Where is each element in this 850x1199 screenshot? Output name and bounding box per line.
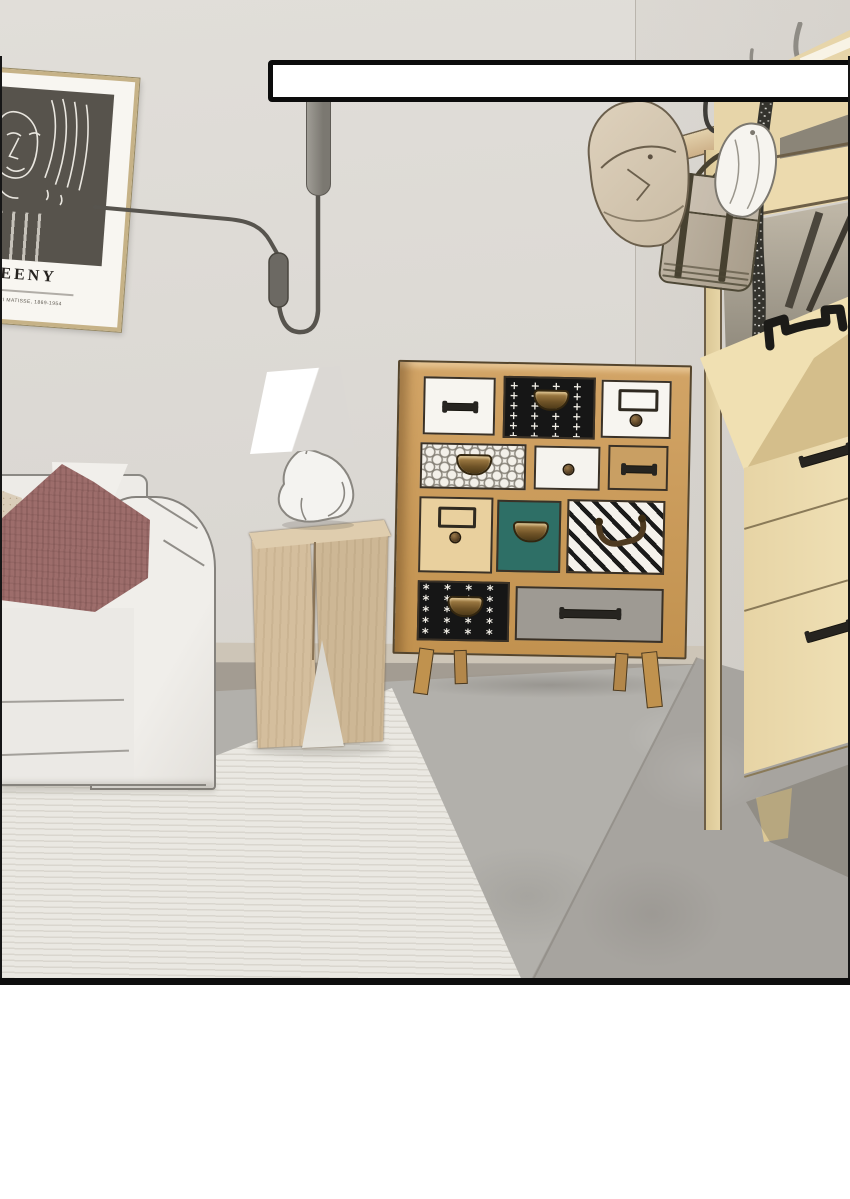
lamp-switch-cylinder	[269, 253, 288, 307]
chest-leg	[413, 648, 434, 696]
sofa-seat	[0, 608, 134, 786]
sofa-floor-shadow	[0, 782, 215, 792]
label-holder	[438, 507, 476, 529]
drawer-handle-cup	[458, 456, 490, 474]
bucket-hat	[583, 95, 698, 253]
wall-lamp-cable	[50, 185, 350, 345]
speech-bubble	[268, 60, 850, 102]
hat-seams	[583, 95, 698, 253]
drawer-plus-pattern: + + + + + + + + + + + + + + + + + + + + …	[503, 376, 596, 440]
table-plank-seam	[312, 542, 316, 660]
panel-border-left	[0, 56, 2, 985]
drawer-knob	[564, 465, 573, 474]
drawer-handle-bar	[622, 466, 656, 473]
drawer-lightwood-label	[418, 496, 493, 573]
label-holder	[618, 389, 658, 412]
cabinet-flap-handle	[748, 300, 848, 360]
panel-border-bottom	[0, 978, 850, 985]
drawer-white-plain	[534, 445, 601, 490]
drawer-gray	[515, 586, 664, 643]
drawer-handle-cup	[515, 523, 547, 541]
chest-leg	[454, 650, 468, 684]
drawer-star-pattern: * * * * * * * * * * * * * * * * * * * * …	[417, 580, 510, 642]
drawer-wood-bar	[608, 445, 669, 491]
drawer-handle-bar	[443, 404, 477, 411]
drawer-teal	[496, 500, 561, 573]
side-table	[243, 516, 395, 752]
drawer-chest: + + + + + + + + + + + + + + + + + + + + …	[391, 356, 694, 712]
drawer-knob	[631, 415, 641, 425]
drawer-white-bar	[423, 376, 496, 435]
drawer-white-label	[601, 380, 672, 439]
drawer-handle-bail	[568, 501, 665, 575]
drawer-stripe-pattern	[566, 499, 665, 575]
sofa	[0, 448, 218, 792]
chest-leg	[641, 651, 663, 708]
drawer-circle-pattern	[420, 442, 527, 490]
drawer-handle-bar	[560, 610, 620, 618]
rabbit-lamp	[250, 366, 370, 534]
comic-panel: + + + + + + + + + + + + + + + + + + + + …	[0, 0, 850, 985]
lampshade	[250, 366, 354, 454]
chest-leg	[613, 653, 629, 692]
drawer-knob	[451, 533, 460, 542]
page-margin-bottom	[0, 985, 850, 1199]
